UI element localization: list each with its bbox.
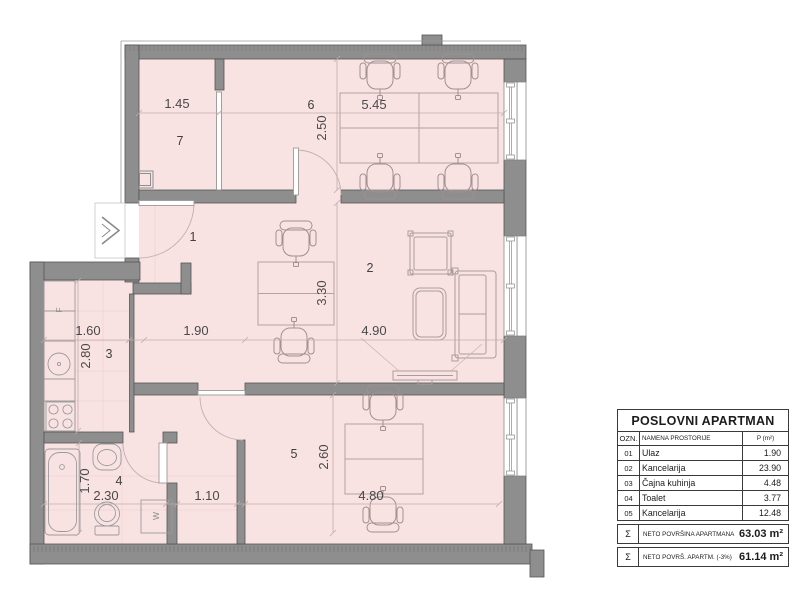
room-label: 6 bbox=[308, 98, 315, 112]
header-area: P (m²) bbox=[742, 432, 788, 445]
row-area: 23.90 bbox=[742, 460, 788, 475]
row-area: 12.48 bbox=[742, 505, 788, 520]
room-label: 5 bbox=[291, 447, 298, 461]
total-value: 63.03 m² bbox=[737, 525, 788, 543]
row-name: Ulaz bbox=[639, 445, 742, 460]
wall-room5-left-seg bbox=[131, 383, 198, 395]
hatch-top bbox=[126, 46, 525, 51]
row-ozn: 04 bbox=[618, 490, 639, 505]
wall-entry-horizontal bbox=[30, 262, 140, 280]
table-row: 03 Čajna kuhinja 4.48 bbox=[618, 475, 788, 490]
entrance bbox=[95, 203, 125, 258]
window-icon bbox=[504, 82, 526, 160]
row-area: 3.77 bbox=[742, 490, 788, 505]
window-icon bbox=[504, 398, 526, 476]
table-row: 04 Toalet 3.77 bbox=[618, 490, 788, 505]
dimension-label: 1.45 bbox=[164, 96, 189, 111]
wall-right-4 bbox=[504, 476, 526, 544]
glass-partition bbox=[217, 92, 222, 190]
room-label: 2 bbox=[367, 261, 374, 275]
legend-title: POSLOVNI APARTMAN bbox=[618, 410, 788, 432]
fridge-label: F bbox=[54, 307, 64, 312]
wall-right-1 bbox=[504, 59, 526, 82]
wall-bath-top bbox=[44, 432, 123, 443]
sigma-icon: Σ bbox=[618, 525, 639, 543]
dimension-label: 2.30 bbox=[93, 488, 118, 503]
legend-table: POSLOVNI APARTMAN OZN. NAMENA PROSTORIJE… bbox=[617, 409, 789, 570]
row-area: 1.90 bbox=[742, 445, 788, 460]
wall-kitchen-partition bbox=[130, 294, 135, 432]
row-name: Čajna kuhinja bbox=[639, 475, 742, 490]
table-row: 01 Ulaz 1.90 bbox=[618, 445, 788, 460]
sigma-icon: Σ bbox=[618, 548, 639, 566]
row-area: 4.48 bbox=[742, 475, 788, 490]
table-row: 05 Kancelarija 12.48 bbox=[618, 505, 788, 520]
row-name: Kancelarija bbox=[639, 505, 742, 520]
wall-bottom-step bbox=[530, 550, 544, 577]
room-label: 1 bbox=[190, 230, 197, 244]
row-name: Toalet bbox=[639, 490, 742, 505]
wall-room5-west bbox=[237, 440, 245, 544]
wall-right-3 bbox=[504, 336, 526, 398]
dimension-label: 1.10 bbox=[194, 488, 219, 503]
row-ozn: 02 bbox=[618, 460, 639, 475]
windows bbox=[504, 82, 526, 476]
window-icon bbox=[504, 236, 526, 336]
washer-label: W bbox=[151, 512, 161, 520]
header-ozn: OZN. bbox=[618, 432, 639, 445]
dimension-label: 4.80 bbox=[358, 488, 383, 503]
dimension-label: 2.60 bbox=[316, 444, 331, 469]
hatch-bottom bbox=[31, 546, 531, 552]
header-name: NAMENA PROSTORIJE bbox=[639, 432, 742, 445]
total-value: 61.14 m² bbox=[737, 548, 788, 566]
apartment-floor bbox=[44, 59, 504, 544]
dimension-label: 4.90 bbox=[361, 323, 386, 338]
legend-main-box: POSLOVNI APARTMAN OZN. NAMENA PROSTORIJE… bbox=[617, 409, 789, 521]
dimension-label: 3.30 bbox=[314, 280, 329, 305]
wall-niche-stub bbox=[181, 263, 191, 294]
total-label: NETO POVRŠ. APARTM. (-3%) bbox=[639, 551, 737, 564]
row-ozn: 03 bbox=[618, 475, 639, 490]
dimension-label: 1.90 bbox=[183, 323, 208, 338]
dimension-label: 2.80 bbox=[78, 343, 93, 368]
legend-total-row: Σ NETO POVRŠINA APARTMANA 63.03 m² bbox=[617, 524, 789, 544]
legend-total-row: Σ NETO POVRŠ. APARTM. (-3%) 61.14 m² bbox=[617, 547, 789, 567]
wall-right-2 bbox=[504, 160, 526, 236]
wall-top-notch bbox=[422, 35, 442, 45]
dimension-label: 1.60 bbox=[75, 323, 100, 338]
table-row: 02 Kancelarija 23.90 bbox=[618, 460, 788, 475]
dimension-label: 1.70 bbox=[77, 468, 92, 493]
room-label: 7 bbox=[177, 134, 184, 148]
wall-mid-right bbox=[341, 190, 504, 203]
row-ozn: 01 bbox=[618, 445, 639, 460]
floor-plan-page: F W bbox=[0, 0, 800, 594]
dimension-label: 5.45 bbox=[361, 97, 386, 112]
wall-left-lower bbox=[30, 262, 44, 564]
room-label: 3 bbox=[106, 347, 113, 361]
legend-header-row: OZN. NAMENA PROSTORIJE P (m²) bbox=[618, 432, 788, 445]
dimension-label: 2.50 bbox=[314, 115, 329, 140]
room-label: 4 bbox=[116, 474, 123, 488]
total-label: NETO POVRŠINA APARTMANA bbox=[639, 528, 737, 541]
row-name: Kancelarija bbox=[639, 460, 742, 475]
wall-bath-hinge bbox=[163, 432, 177, 443]
row-ozn: 05 bbox=[618, 505, 639, 520]
wall-stub-top bbox=[215, 59, 224, 90]
